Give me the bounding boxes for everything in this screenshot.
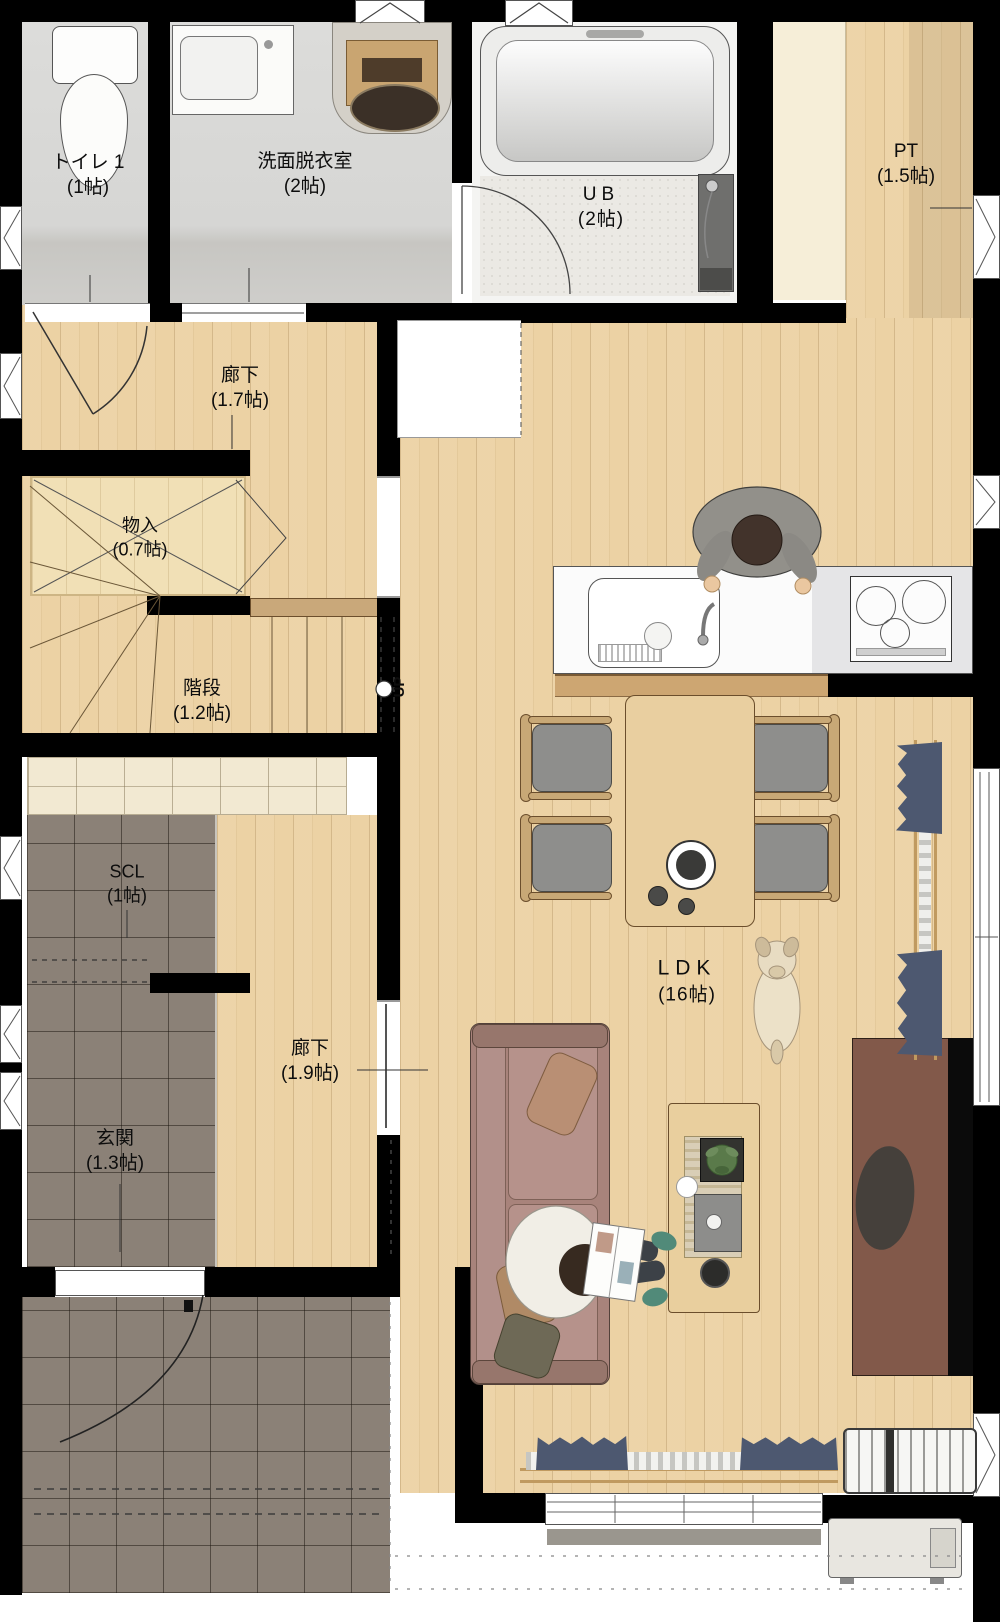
room-name: トイレ 1 bbox=[52, 150, 125, 175]
room-area: (1.2帖) bbox=[173, 701, 231, 726]
hallway-ldk-sliding-door bbox=[386, 1004, 391, 1260]
floor-plan: トイレ 1 (1帖) 洗面脱衣室 (2帖) UB (2帖) PT (1.5帖) … bbox=[0, 0, 1000, 1622]
room-label-pantry: PT (1.5帖) bbox=[877, 139, 935, 189]
room-label-washroom: 洗面脱衣室 (2帖) bbox=[257, 149, 352, 199]
stair-section-cut bbox=[381, 617, 394, 733]
up-text: UP bbox=[391, 677, 408, 698]
room-name: 廊下 bbox=[211, 363, 269, 388]
room-name: LDK bbox=[658, 955, 717, 983]
scl-upper-cabinet-dashes bbox=[32, 960, 148, 982]
plan-linework bbox=[0, 0, 1000, 1622]
room-label-entrance: 玄関 (1.3帖) bbox=[86, 1126, 144, 1176]
window-swing-marks bbox=[4, 199, 998, 1493]
room-area: (1.9帖) bbox=[281, 1061, 339, 1086]
room-label-scl: SCL (1帖) bbox=[107, 860, 147, 908]
room-area: (1.5帖) bbox=[877, 164, 935, 189]
bath-door bbox=[462, 186, 570, 294]
room-name: PT bbox=[877, 139, 935, 164]
dog bbox=[753, 935, 801, 1064]
room-label-stairs: 階段 (1.2帖) bbox=[173, 676, 231, 726]
room-name: UB bbox=[578, 182, 624, 207]
person-at-kitchen bbox=[690, 487, 825, 594]
kitchen-faucet bbox=[698, 604, 714, 645]
room-area: (2帖) bbox=[578, 207, 624, 232]
room-area: (1.3帖) bbox=[86, 1151, 144, 1176]
room-label-bath: UB (2帖) bbox=[578, 182, 624, 232]
room-name: 階段 bbox=[173, 676, 231, 701]
room-area: (0.7帖) bbox=[112, 538, 167, 562]
room-name: 廊下 bbox=[281, 1036, 339, 1061]
room-name: 洗面脱衣室 bbox=[257, 149, 352, 174]
room-area: (1帖) bbox=[107, 884, 147, 908]
potted-plant bbox=[704, 1145, 740, 1175]
roof-vent-triangles bbox=[360, 3, 568, 23]
room-label-hallway-lower: 廊下 (1.9帖) bbox=[281, 1036, 339, 1086]
room-area: (2帖) bbox=[257, 174, 352, 199]
stairs-up-label: UP bbox=[390, 677, 410, 698]
person-on-sofa bbox=[506, 1206, 679, 1318]
entry-door-swing bbox=[60, 1295, 203, 1442]
room-label-closet: 物入 (0.7帖) bbox=[112, 514, 167, 562]
room-name: SCL bbox=[107, 860, 147, 884]
room-area: (16帖) bbox=[658, 982, 717, 1007]
step-dashed-lines bbox=[34, 1489, 382, 1514]
toilet-door bbox=[33, 312, 147, 414]
room-label-hallway-upper: 廊下 (1.7帖) bbox=[211, 363, 269, 413]
room-name: 物入 bbox=[112, 514, 167, 538]
room-area: (1帖) bbox=[52, 175, 125, 200]
site-boundary-dashes bbox=[390, 1302, 966, 1589]
terrace-slider-tracks bbox=[547, 1495, 821, 1523]
room-name: 玄関 bbox=[86, 1126, 144, 1151]
room-label-ldk: LDK (16帖) bbox=[658, 955, 717, 1008]
shower-head bbox=[705, 180, 718, 258]
room-label-toilet: トイレ 1 (1帖) bbox=[52, 150, 125, 200]
room-area: (1.7帖) bbox=[211, 388, 269, 413]
